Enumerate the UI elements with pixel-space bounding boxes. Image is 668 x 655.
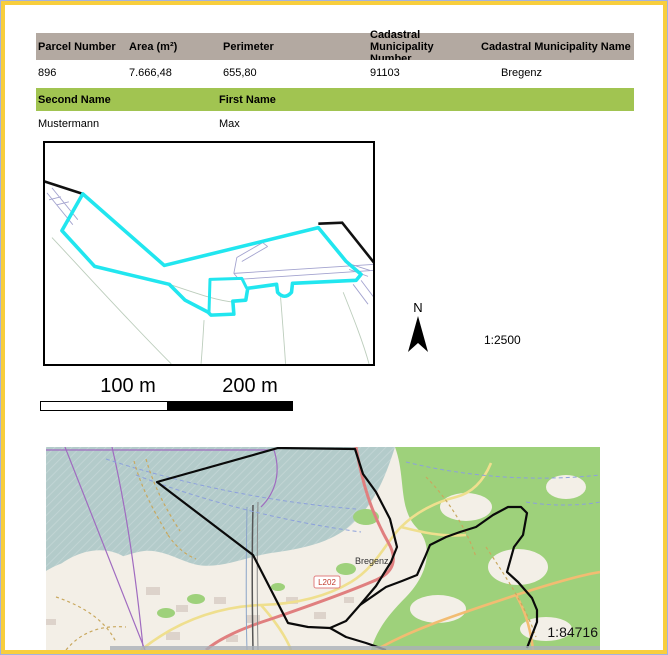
- second-name-header: Second Name: [36, 88, 217, 111]
- north-arrow-icon: [400, 314, 436, 354]
- first-name-header: First Name: [217, 88, 634, 111]
- detail-scale-text: 1:2500: [484, 333, 521, 347]
- municipality-name-value: Bregenz: [479, 60, 634, 86]
- overview-scale-text: 1:84716: [547, 624, 598, 640]
- parcel-table-header: Parcel Number Area (m²) Perimeter Cadast…: [36, 33, 634, 60]
- parcel-number-header: Parcel Number: [36, 33, 127, 60]
- parcel-table-row: 896 7.666,48 655,80 91103 Bregenz: [36, 60, 634, 86]
- municipality-number-header: Cadastral Municipality Number: [368, 33, 479, 60]
- first-name-value: Max: [217, 111, 634, 137]
- overview-map-canvas: L202 Bregenz 1:84716: [46, 447, 600, 650]
- perimeter-header: Perimeter: [221, 33, 368, 60]
- area-value: 7.666,48: [127, 60, 221, 86]
- detail-map: [43, 141, 375, 366]
- north-arrow: N: [399, 300, 437, 358]
- city-label: Bregenz: [355, 556, 389, 566]
- second-name-value: Mustermann: [36, 111, 217, 137]
- municipality-number-value: 91103: [368, 60, 479, 86]
- parcel-number-value: 896: [36, 60, 127, 86]
- scalebar-bar: [40, 401, 293, 411]
- scalebar-black-segment: [167, 402, 293, 410]
- overview-map: L202 Bregenz 1:84716: [46, 447, 600, 650]
- scalebar-label-200: 200 m: [212, 375, 288, 398]
- perimeter-value: 655,80: [221, 60, 368, 86]
- owner-table-row: Mustermann Max: [36, 111, 634, 137]
- north-label: N: [399, 300, 437, 314]
- scalebar-label-100: 100 m: [90, 375, 166, 398]
- scalebar: 100 m 200 m: [40, 375, 296, 414]
- road-shield-label: L202: [318, 578, 336, 587]
- bottom-road-strip: [110, 646, 600, 650]
- area-header: Area (m²): [127, 33, 221, 60]
- road-shield: L202: [314, 576, 340, 588]
- municipality-name-header: Cadastral Municipality Name: [479, 33, 634, 60]
- owner-table-header: Second Name First Name: [36, 88, 634, 111]
- detail-map-canvas: [45, 143, 373, 364]
- report-page: Parcel Number Area (m²) Perimeter Cadast…: [0, 0, 668, 655]
